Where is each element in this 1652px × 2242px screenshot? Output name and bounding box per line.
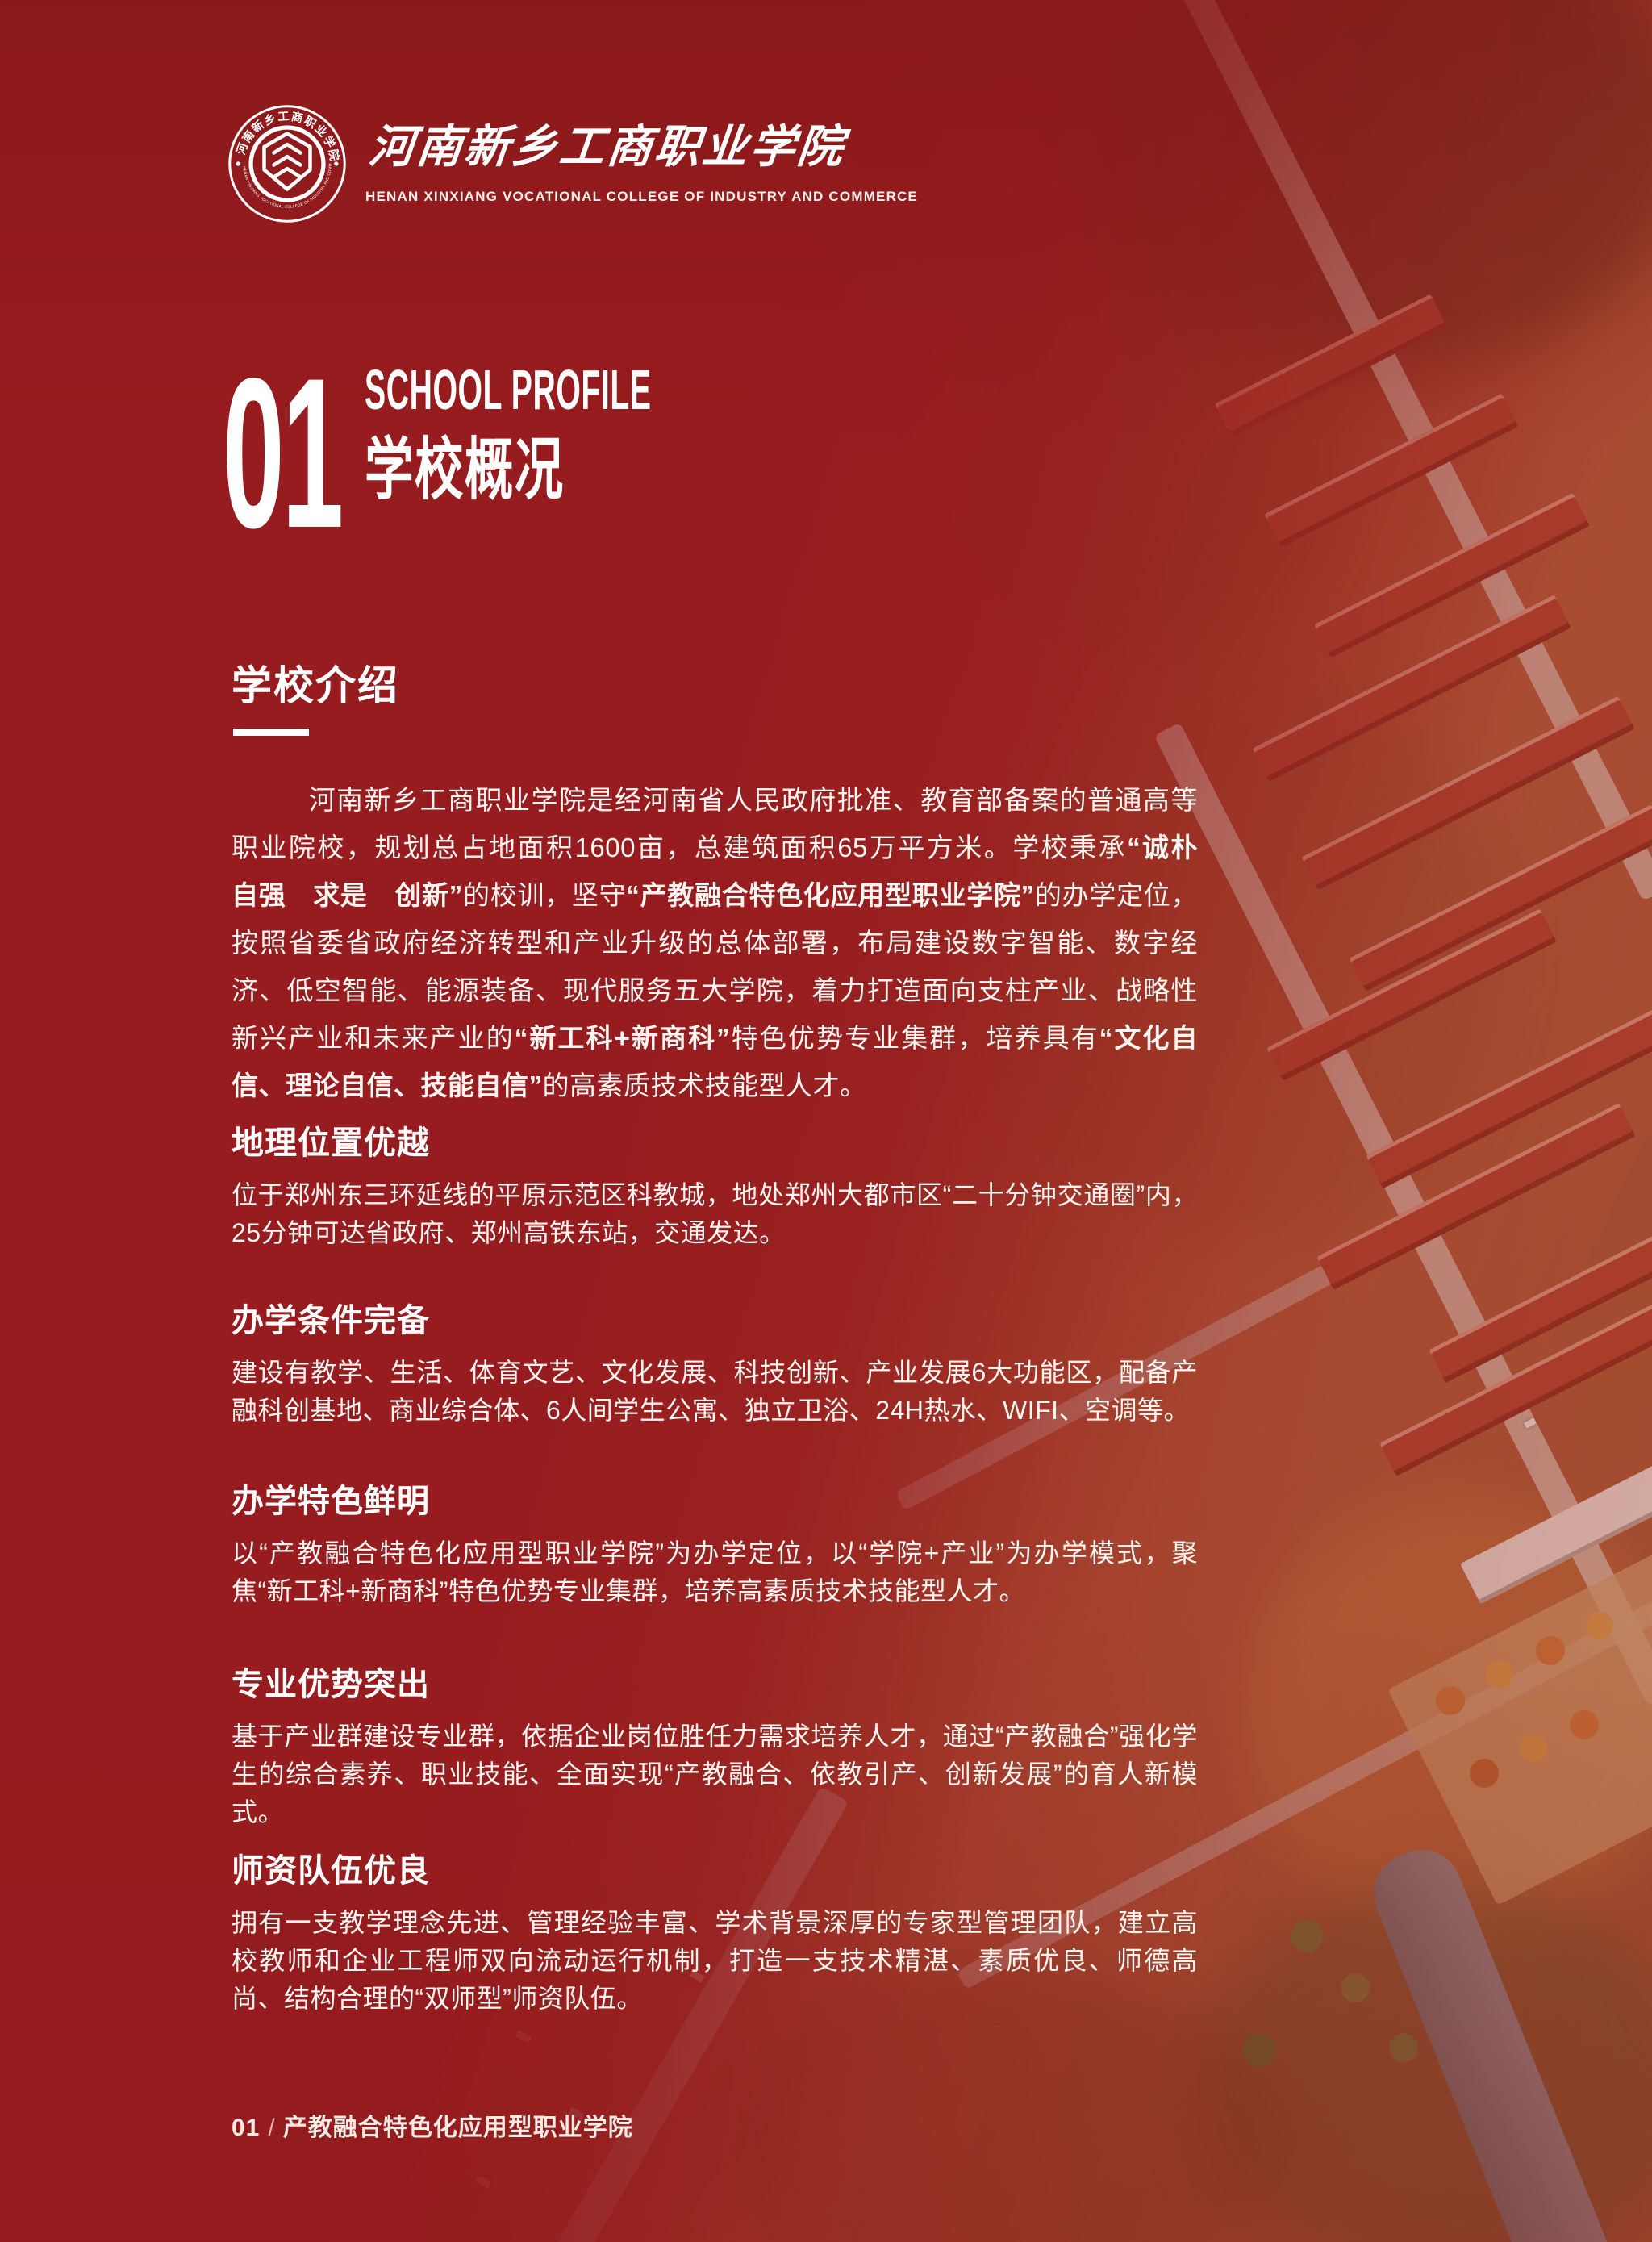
section-title-chinese: 学校概况 [365,436,642,503]
section-heading: 师资队伍优良 [232,1844,1198,1891]
page-content: 河南新乡工商职业学院 HENAN XINXIANG VOCATIONAL COL… [0,0,1652,2242]
intro-paragraph: 河南新乡工商职业学院是经河南省人民政府批准、教育部备案的普通高等职业院校，规划总… [232,776,1198,1109]
brochure-page: 河南新乡工商职业学院 HENAN XINXIANG VOCATIONAL COL… [0,0,1652,2242]
info-section-majors: 专业优势突出 基于产业群建设专业群，依据企业岗位胜任力需求培养人才，通过“产教融… [232,1658,1198,1831]
section-heading: 专业优势突出 [232,1658,1198,1705]
info-section-faculty: 师资队伍优良 拥有一支教学理念先进、管理经验丰富、学术背景深厚的专家型管理团队，… [232,1844,1198,2018]
info-section-location: 地理位置优越 位于郑州东三环延线的平原示范区科教城，地处郑州大都市区“二十分钟交… [232,1117,1198,1252]
info-section-facilities: 办学条件完备 建设有教学、生活、体育文艺、文化发展、科技创新、产业发展6大功能区… [232,1294,1198,1430]
seal-emblem [265,134,311,190]
college-name-english: HENAN XINXIANG VOCATIONAL COLLEGE OF IND… [365,189,918,205]
section-body: 基于产业群建设专业群，依据企业岗位胜任力需求培养人才，通过“产教融合”强化学生的… [232,1718,1198,1831]
section-body: 拥有一支教学理念先进、管理经验丰富、学术背景深厚的专家型管理团队，建立高校教师和… [232,1904,1198,2018]
college-seal-icon: 河南新乡工商职业学院 HENAN XINXIANG VOCATIONAL COL… [227,103,348,224]
intro-heading: 学校介绍 [232,653,399,712]
footer-separator: / [268,2115,274,2142]
info-section-features: 办学特色鲜明 以“产教融合特色化应用型职业学院”为办学定位，以“学院+产业”为办… [232,1475,1198,1610]
page-footer: 01 / 产教融合特色化应用型职业学院 [232,2107,633,2143]
footer-page-number: 01 [232,2115,260,2142]
footer-title: 产教融合特色化应用型职业学院 [283,2107,633,2143]
section-heading: 办学特色鲜明 [232,1475,1198,1522]
section-body: 位于郑州东三环延线的平原示范区科教城，地处郑州大都市区“二十分钟交通圈”内，25… [232,1176,1198,1252]
college-logo: 河南新乡工商职业学院 HENAN XINXIANG VOCATIONAL COL… [227,103,918,224]
college-name-calligraphy: 河南新乡工商职业学院 [365,111,926,184]
section-body: 建设有教学、生活、体育文艺、文化发展、科技创新、产业发展6大功能区，配备产融科创… [232,1354,1198,1430]
college-names: 河南新乡工商职业学院 HENAN XINXIANG VOCATIONAL COL… [365,103,918,205]
section-heading: 地理位置优越 [232,1117,1198,1163]
intro-heading-underline [233,729,309,736]
section-heading: 办学条件完备 [232,1294,1198,1341]
section-title-english: SCHOOL PROFILE [365,361,877,418]
section-body: 以“产教融合特色化应用型职业学院”为办学定位，以“学院+产业”为办学模式，聚焦“… [232,1534,1198,1610]
